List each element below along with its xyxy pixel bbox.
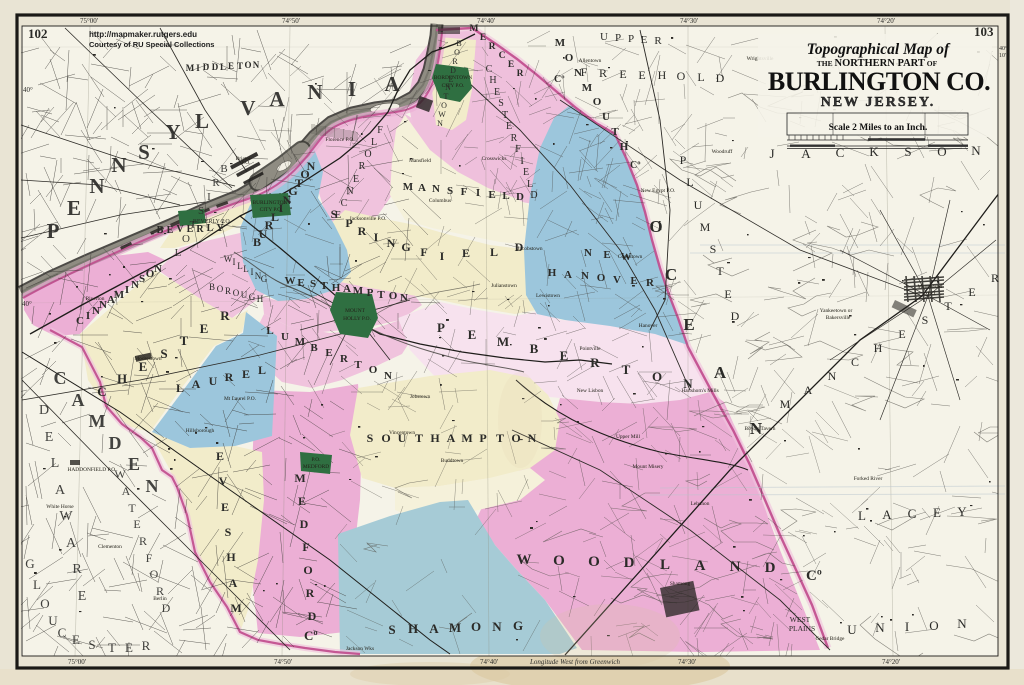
svg-text:Cº: Cº [554,74,565,85]
svg-text:T: T [108,640,116,655]
svg-text:E: E [508,60,514,70]
svg-text:Cookstown: Cookstown [618,254,643,260]
svg-text:O: O [233,288,240,298]
svg-text:V: V [176,224,184,235]
svg-text:http://mapmaker.rutgers.edu: http://mapmaker.rutgers.edu [89,30,197,39]
svg-text:H: H [548,267,557,279]
svg-text:O: O [565,52,574,64]
svg-text:Berlin: Berlin [153,596,167,602]
svg-text:P: P [437,320,445,335]
svg-text:E: E [638,68,645,82]
svg-text:New Egypt P.O.: New Egypt P.O. [641,188,676,194]
svg-text:HADDONFIELD P.O.: HADDONFIELD P.O. [68,467,117,473]
svg-text:O: O [303,563,312,577]
svg-text:E: E [683,315,694,334]
svg-text:BURLINGTON: BURLINGTON [253,200,288,206]
svg-text:N: N [730,559,741,575]
svg-text:D: D [624,555,635,571]
svg-text:E: E [468,327,477,342]
svg-text:C: C [97,384,106,399]
svg-text:O: O [588,554,600,570]
svg-text:N: N [89,174,104,198]
svg-text:U: U [694,198,703,212]
svg-text:Woodruff: Woodruff [712,148,733,155]
svg-text:W: W [438,110,446,119]
svg-text:Columbus: Columbus [429,198,451,204]
svg-text:N: N [307,159,316,173]
svg-text:A: A [229,576,238,590]
svg-text:U: U [209,374,218,388]
svg-text:A: A [122,484,131,498]
svg-text:T: T [237,61,243,71]
svg-text:F: F [581,65,588,79]
svg-text:P: P [680,153,687,167]
svg-text:A: A [55,483,66,498]
svg-text:P.O.: P.O. [242,160,251,166]
svg-text:V: V [240,96,255,120]
svg-text:40°: 40° [999,45,1008,52]
svg-text:75°00': 75°00' [80,17,98,25]
svg-text:Pointville: Pointville [580,346,602,352]
svg-text:H: H [408,621,418,636]
svg-text:BURLINGTON CO.: BURLINGTON CO. [768,67,990,96]
svg-text:R: R [646,277,655,289]
svg-text:Longitude West from Greenwich: Longitude West from Greenwich [529,658,621,666]
svg-text:E: E [933,505,941,520]
svg-text:E: E [167,225,174,236]
svg-text:Forked River: Forked River [854,476,883,482]
svg-text:D: D [203,62,210,72]
svg-text:O: O [471,619,481,634]
svg-text:MOUNT: MOUNT [345,308,365,314]
svg-text:Hillsborough: Hillsborough [186,428,215,434]
svg-text:WEST: WEST [790,615,811,624]
svg-text:L: L [660,557,670,573]
svg-text:N: N [957,616,967,631]
svg-text:BORDENTOWN: BORDENTOWN [434,75,472,81]
svg-text:I: I [86,310,90,322]
svg-text:M: M [295,336,306,348]
svg-text:Boyd's Tavern: Boyd's Tavern [745,426,776,432]
svg-text:I: I [207,191,211,203]
svg-text:A: A [72,390,85,410]
svg-text:E: E [724,287,731,301]
svg-text:D: D [39,403,49,418]
svg-text:O: O [593,96,602,108]
svg-text:E: E [353,174,359,185]
svg-text:74°30': 74°30' [678,658,696,666]
svg-text:E: E [603,249,610,261]
svg-text:T: T [622,362,631,377]
svg-text:V: V [613,274,621,286]
svg-text:P: P [47,219,60,243]
svg-text:A: A [714,363,727,382]
svg-text:L: L [176,381,184,395]
svg-text:O: O [441,101,447,110]
svg-text:C: C [76,315,84,327]
svg-text:R: R [340,353,349,365]
svg-text:I: I [348,77,356,101]
svg-text:O: O [244,60,251,70]
svg-text:M: M [555,37,566,49]
svg-text:R: R [517,69,524,79]
svg-text:E: E [72,632,80,647]
svg-text:Jacobstown: Jacobstown [517,246,542,252]
svg-text:E: E [968,285,975,299]
svg-text:R: R [452,57,458,66]
svg-text:E: E [494,87,500,98]
svg-text:I: I [251,267,254,277]
svg-text:C: C [341,198,348,209]
svg-text:T: T [320,280,328,292]
svg-text:W: W [59,509,73,524]
svg-text:E: E [128,454,140,474]
svg-text:N: N [253,60,260,70]
svg-text:O: O [677,69,686,83]
svg-text:A: A [804,383,813,397]
svg-text:D: D [716,71,725,85]
svg-text:N: N [346,186,353,197]
svg-text:R: R [991,271,999,285]
svg-text:O: O [40,596,49,611]
svg-text:Riverton: Riverton [86,296,105,302]
svg-text:R: R [306,586,315,600]
svg-text:R: R [220,308,230,323]
svg-text:F: F [515,144,521,155]
svg-text:Cº: Cº [630,160,641,171]
svg-text:Scale 2 Miles to an Inch.: Scale 2 Miles to an Inch. [829,123,928,133]
svg-text:Jobstown: Jobstown [410,394,431,400]
svg-text:74°40': 74°40' [477,17,495,25]
svg-text:10': 10' [999,53,1006,59]
svg-text:T: T [716,264,724,278]
svg-text:F: F [420,245,427,259]
svg-text:W: W [517,552,532,568]
svg-text:C: C [499,51,506,61]
svg-text:S: S [139,273,145,285]
svg-text:G: G [261,274,268,284]
svg-text:C: C [851,355,859,369]
svg-text:Lebanon: Lebanon [691,501,710,507]
svg-text:I: I [520,156,523,167]
svg-text:R: R [489,42,496,52]
svg-text:R: R [590,355,600,370]
svg-text:E: E [480,33,486,43]
svg-text:M: M [700,220,711,234]
svg-text:G: G [25,556,34,571]
svg-text:I: I [196,63,200,73]
svg-text:C: C [486,64,493,75]
svg-text:R: R [139,534,147,548]
svg-text:B: B [220,163,227,175]
svg-text:O: O [652,369,662,384]
svg-text:A: A [429,621,439,636]
svg-text:P.O.: P.O. [928,291,937,297]
svg-text:B: B [530,341,539,356]
svg-text:40°: 40° [23,86,33,94]
svg-text:N: N [437,119,443,128]
svg-text:L: L [266,325,273,337]
svg-text:E: E [228,61,234,71]
svg-text:D: D [731,309,740,323]
svg-text:M: M [461,431,472,445]
svg-text:D: D [308,609,317,623]
svg-text:O: O [454,48,460,57]
svg-text:R: R [359,161,366,172]
svg-text:C: C [54,368,67,388]
svg-text:P: P [628,33,634,45]
svg-text:Mansfield: Mansfield [409,157,431,164]
svg-text:Y: Y [165,120,180,144]
svg-text:U: U [241,290,248,300]
svg-text:B: B [209,282,215,292]
svg-text:Shamong: Shamong [670,581,691,587]
svg-text:O: O [511,431,520,445]
svg-text:H: H [117,371,127,386]
svg-text:Jacksonville P.O.: Jacksonville P.O. [350,216,387,222]
svg-text:74°30': 74°30' [680,17,698,25]
svg-text:S: S [710,242,717,256]
svg-text:S: S [198,205,204,217]
svg-text:HOLLY P.O.: HOLLY P.O. [343,316,371,322]
svg-text:S: S [447,185,453,197]
svg-text:E: E [298,494,306,508]
svg-text:S: S [88,637,95,652]
svg-text:R: R [599,66,607,80]
svg-text:E: E [630,275,637,287]
svg-text:Cedar Bridge: Cedar Bridge [816,636,845,642]
svg-text:J: J [769,146,774,161]
svg-text:Cº: Cº [806,568,822,584]
svg-text:U: U [847,622,857,637]
svg-text:U: U [600,31,608,43]
svg-text:L: L [697,70,704,84]
svg-text:N: N [384,370,392,382]
svg-text:H: H [489,75,496,86]
svg-text:M: M [294,471,305,485]
svg-text:M: M [497,334,509,349]
svg-text:E: E [641,34,648,46]
svg-text:I: I [440,249,445,263]
svg-text:P: P [367,287,374,299]
svg-text:R: R [511,133,518,144]
svg-text:Moorestown: Moorestown [134,356,162,362]
svg-text:T: T [944,299,952,313]
svg-text:Julianstown: Julianstown [491,283,517,289]
svg-text:75°00': 75°00' [68,658,86,666]
svg-text:B: B [157,225,164,236]
svg-text:R: R [225,370,234,384]
svg-text:M: M [470,24,479,34]
svg-text:D: D [212,62,219,72]
svg-text:D: D [450,66,456,75]
svg-text:74°50': 74°50' [282,17,300,25]
svg-text:H: H [430,431,440,445]
svg-text:S: S [310,278,316,290]
svg-text:M: M [582,82,593,94]
svg-text:Topographical Map of: Topographical Map of [807,41,951,58]
svg-text:L: L [243,264,249,274]
svg-text:E: E [488,189,495,201]
svg-text:A: A [418,182,426,194]
svg-text:H: H [226,550,236,564]
svg-text:N: N [828,369,837,383]
svg-text:M: M [114,289,125,301]
svg-text:H: H [658,68,667,82]
svg-text:R: R [212,177,220,189]
svg-text:L: L [371,137,377,148]
svg-text:F: F [377,125,383,136]
svg-text:M: M [449,620,461,635]
svg-text:C: C [908,506,917,521]
svg-text:L: L [686,175,693,189]
svg-text:S: S [367,431,374,445]
svg-text:N: N [432,183,440,195]
svg-text:N: N [387,236,396,250]
svg-text:E: E [67,196,81,220]
svg-text:T: T [496,431,504,445]
svg-text:O: O [217,284,224,294]
svg-text:F: F [302,540,309,554]
svg-text:E: E [297,277,304,289]
svg-text:A: A [384,72,400,96]
svg-text:C: C [58,625,67,640]
svg-text:U: U [281,331,289,343]
svg-text:NEW JERSEY.: NEW JERSEY. [821,95,936,110]
svg-text:E: E [898,327,905,341]
svg-text:E: E [187,224,194,235]
svg-text:E: E [78,589,87,604]
svg-text:CITY P.O.: CITY P.O. [442,83,465,89]
svg-text:S: S [922,313,929,327]
svg-text:A: A [343,283,351,295]
svg-text:Vincentown: Vincentown [389,430,415,436]
svg-text:W: W [285,275,296,287]
svg-text:N: N [971,143,981,158]
svg-text:F: F [146,551,153,565]
svg-text:New Lisbon: New Lisbon [577,388,604,394]
svg-text:G: G [513,618,523,633]
svg-text:T: T [415,431,423,445]
svg-text:A: A [882,507,892,522]
svg-text:O: O [150,567,159,581]
svg-text:B: B [310,342,318,354]
svg-text:A: A [192,377,201,391]
svg-text:N: N [875,620,885,635]
svg-text:Florence P.O.: Florence P.O. [325,137,354,143]
svg-text:B: B [456,39,461,48]
svg-text:CITY P.O.: CITY P.O. [260,207,283,213]
svg-text:O: O [553,553,565,569]
svg-text:Y: Y [957,504,967,519]
svg-text:S: S [388,622,395,637]
svg-text:E: E [133,517,140,531]
svg-text:40°: 40° [22,300,32,308]
svg-text:MEDFORD: MEDFORD [303,464,329,470]
svg-text:N: N [307,80,322,104]
svg-text:A: A [269,87,285,111]
svg-text:P.O.: P.O. [312,457,321,463]
svg-text:T: T [502,110,508,121]
svg-text:74°50': 74°50' [274,658,292,666]
svg-text:74°20': 74°20' [882,658,900,666]
svg-text:V: V [219,474,228,488]
svg-text:D: D [765,560,776,576]
svg-text:E: E [45,430,54,445]
svg-text:A: A [66,536,77,551]
svg-text:U: U [602,111,610,123]
svg-text:L: L [527,179,533,190]
svg-text:Crosswicks: Crosswicks [482,156,507,162]
svg-text:E: E [560,348,569,363]
svg-text:F: F [461,186,468,198]
svg-text:D: D [530,190,537,201]
svg-text:O: O [364,149,371,160]
svg-text:Clementon: Clementon [98,544,122,550]
svg-text:L: L [195,109,209,133]
svg-text:A: A [447,431,456,445]
svg-text:T: T [611,126,619,138]
svg-text:E: E [216,449,224,463]
svg-text:O: O [597,272,606,284]
svg-text:N: N [154,263,162,275]
svg-text:N: N [581,270,589,282]
svg-text:S: S [225,525,232,539]
svg-text:O: O [649,217,662,236]
svg-text:M: M [230,601,241,615]
svg-text:Buddtown: Buddtown [441,458,464,464]
svg-text:T: T [180,333,189,348]
svg-text:C: C [665,265,677,284]
svg-text:C: C [836,145,845,160]
svg-text:Bakersville: Bakersville [826,315,851,321]
svg-text:E: E [506,121,512,132]
svg-text:L: L [220,62,226,72]
svg-text:Manchester: Manchester [917,284,942,290]
svg-text:R: R [358,224,367,238]
svg-text:H: H [257,294,264,304]
svg-text:H: H [620,141,629,153]
svg-text:D: D [109,433,122,453]
svg-text:M: M [89,411,106,431]
svg-text:S: S [138,140,150,164]
svg-text:103: 103 [974,24,994,39]
svg-text:E: E [619,67,626,81]
svg-text:A: A [695,558,706,574]
svg-text:I: I [233,257,236,267]
svg-text:I: I [374,230,379,244]
svg-text:H: H [874,341,883,355]
svg-text:R: R [142,638,151,653]
svg-text:O: O [389,290,398,302]
svg-text:T: T [128,501,136,515]
svg-text:R: R [196,224,204,235]
svg-text:Cº: Cº [304,628,318,643]
svg-text:Jackson Wks: Jackson Wks [346,646,374,652]
svg-text:W: W [224,254,233,264]
svg-text:M: M [353,285,364,297]
svg-text:74°20': 74°20' [877,17,895,25]
svg-text:Mt Laurel P.O.: Mt Laurel P.O. [224,396,256,402]
svg-text:G: G [249,292,256,302]
svg-text:T: T [444,92,449,101]
svg-text:N: N [400,292,408,304]
svg-text:R: R [225,286,231,296]
svg-text:Hartshorn's Mills: Hartshorn's Mills [681,388,718,394]
svg-text:Mount Misery: Mount Misery [633,464,664,470]
svg-text:E: E [221,500,229,514]
svg-text:O: O [369,364,378,376]
